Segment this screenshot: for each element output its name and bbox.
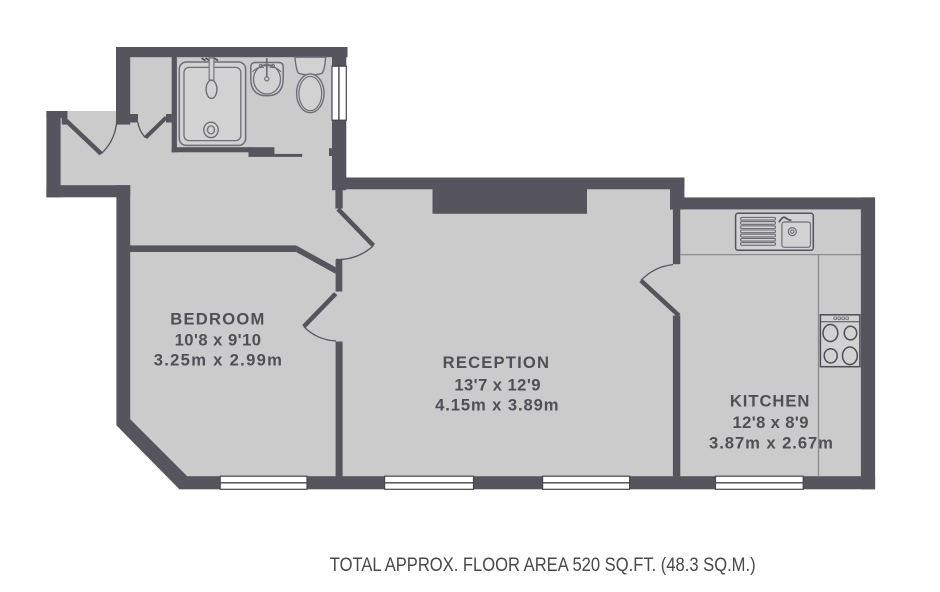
svg-text:3.87m x 2.67m: 3.87m x 2.67m: [709, 434, 833, 453]
svg-text:13'7 x 12'9: 13'7 x 12'9: [454, 376, 540, 395]
svg-text:BEDROOM: BEDROOM: [170, 310, 264, 329]
svg-text:TOTAL APPROX. FLOOR AREA 520 S: TOTAL APPROX. FLOOR AREA 520 SQ.FT. (48.…: [330, 555, 756, 576]
svg-text:12'8 x 8'9: 12'8 x 8'9: [733, 413, 809, 432]
svg-text:4.15m x 3.89m: 4.15m x 3.89m: [435, 396, 558, 415]
svg-text:RECEPTION: RECEPTION: [443, 353, 549, 372]
svg-text:10'8 x 9'10: 10'8 x 9'10: [175, 331, 261, 350]
svg-text:KITCHEN: KITCHEN: [730, 391, 810, 410]
svg-text:3.25m x 2.99m: 3.25m x 2.99m: [154, 351, 282, 370]
